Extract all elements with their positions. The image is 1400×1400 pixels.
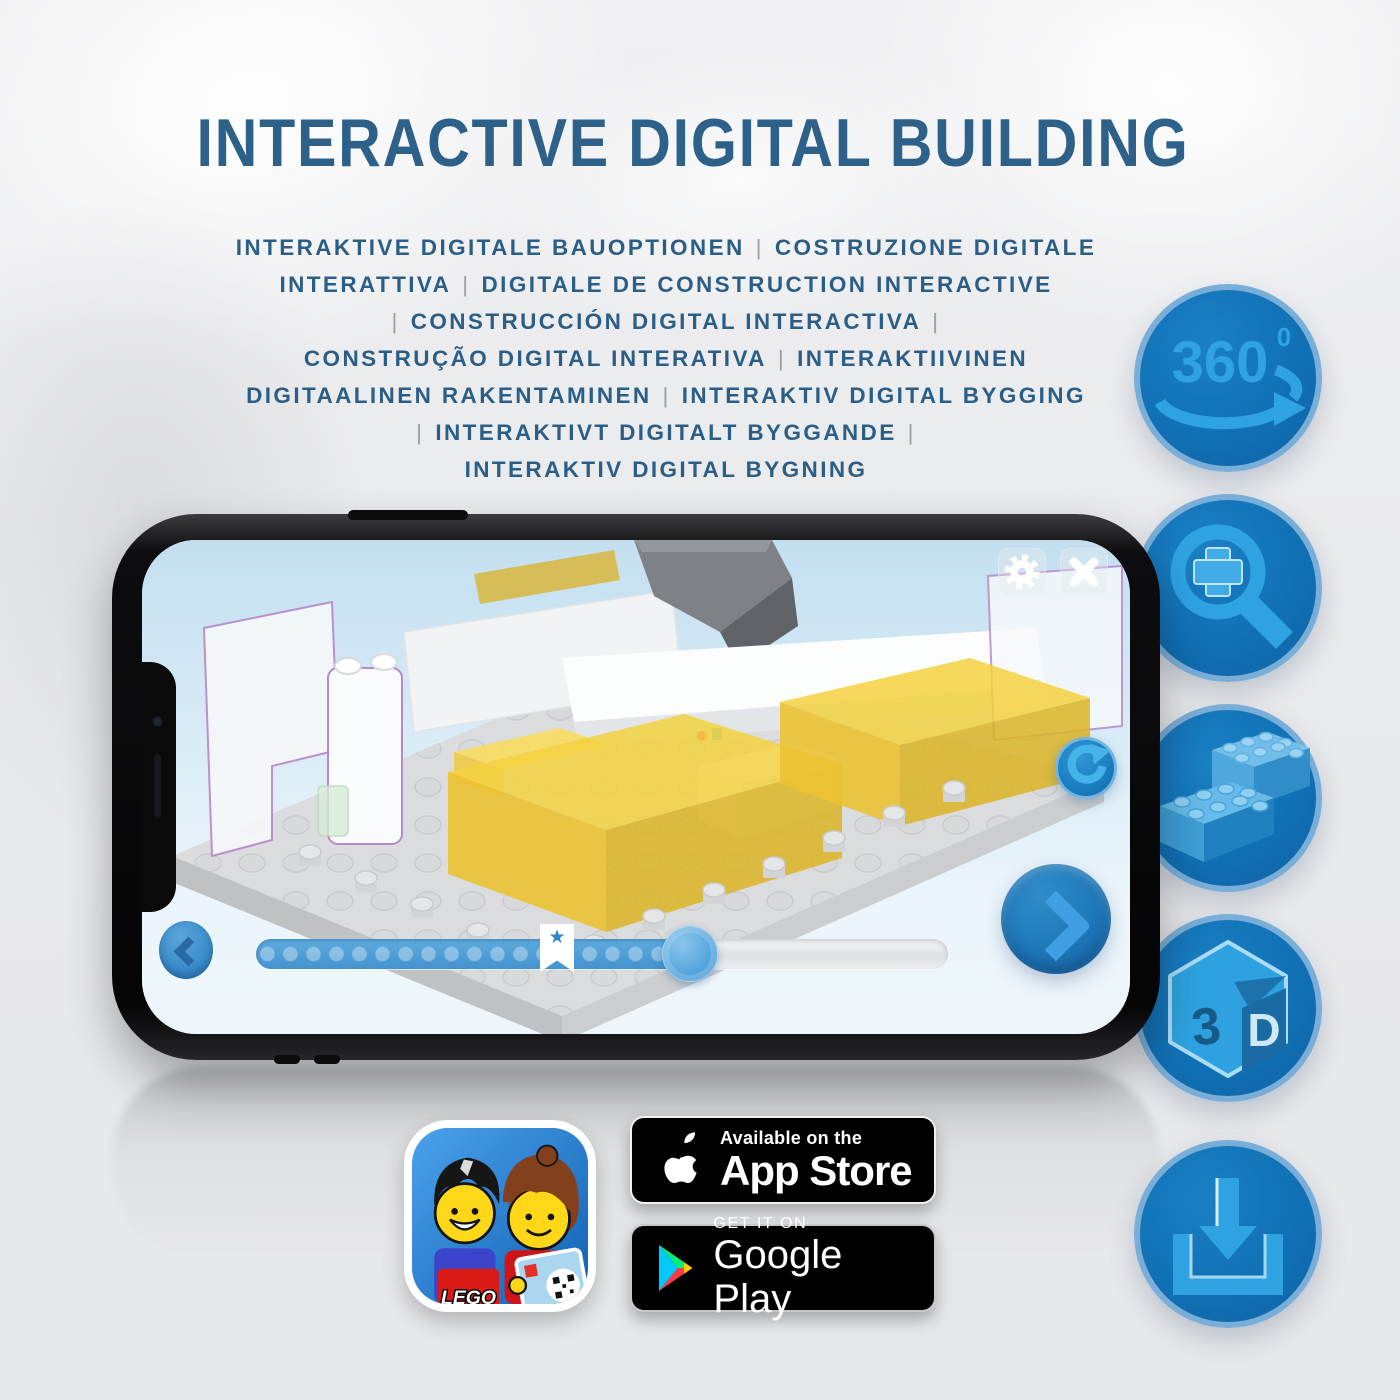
speaker-slit (154, 754, 161, 818)
magnifier-plus-icon (1140, 500, 1316, 676)
phone-screen: ★ (142, 540, 1130, 1034)
page: INTERACTIVE DIGITAL BUILDING INTERAKTIVE… (0, 0, 1400, 1400)
feature-zoom-badge (1134, 494, 1322, 682)
app-store-line1: Available on the (720, 1128, 912, 1149)
lego-logo-text: LEGO (441, 1287, 496, 1304)
slider-fill (256, 939, 690, 969)
refresh-rotate-icon (1058, 740, 1114, 796)
phone-notch (142, 662, 176, 912)
lego-app-icon[interactable]: LEGO (404, 1120, 596, 1312)
rotate-view-button[interactable] (1055, 737, 1117, 799)
page-title: INTERACTIVE DIGITAL BUILDING (90, 104, 1296, 182)
settings-button[interactable] (998, 548, 1046, 596)
lego-bricks-icon (1140, 710, 1316, 886)
feature-download-badge (1134, 1140, 1322, 1328)
cube-3-label: 3 (1189, 997, 1224, 1058)
label-360-degree: 0 (1277, 322, 1291, 352)
close-x-icon (1060, 548, 1108, 596)
cube-d-label: D (1247, 1004, 1280, 1056)
previous-step-button[interactable] (159, 921, 213, 979)
antenna-band (314, 1055, 340, 1064)
google-play-line1: GET IT ON (713, 1215, 918, 1233)
app-store-line2: App Store (720, 1149, 912, 1193)
google-play-icon (656, 1245, 695, 1291)
slider-thumb[interactable] (662, 926, 718, 982)
chevron-right-icon (1021, 891, 1092, 962)
front-camera (152, 716, 163, 727)
google-play-badge[interactable]: GET IT ON Google Play (630, 1224, 936, 1312)
subtitle-multilang: INTERAKTIVE DIGITALE BAUOPTIONEN|COSTRUZ… (160, 229, 1172, 488)
feature-3d-badge: 3 D (1134, 914, 1322, 1102)
volume-button (348, 510, 468, 520)
gear-icon (998, 548, 1046, 596)
download-tray-icon (1140, 1146, 1316, 1322)
build-progress-slider[interactable]: ★ (256, 939, 948, 969)
app-store-badge[interactable]: Available on the App Store (630, 1116, 936, 1204)
phone-mockup: ★ (112, 514, 1160, 1060)
antenna-band (274, 1055, 300, 1064)
chevron-left-icon (174, 937, 204, 967)
feature-bricks-badge (1134, 704, 1322, 892)
close-button[interactable] (1060, 548, 1108, 596)
next-step-button[interactable] (1001, 864, 1111, 974)
label-360: 360 (1172, 330, 1269, 395)
google-play-line2: Google Play (713, 1233, 918, 1321)
star-icon: ★ (540, 927, 574, 949)
apple-logo-icon (656, 1132, 702, 1188)
3d-cube-icon: 3 D (1140, 920, 1316, 1096)
lego-app-artwork: LEGO (412, 1128, 588, 1304)
